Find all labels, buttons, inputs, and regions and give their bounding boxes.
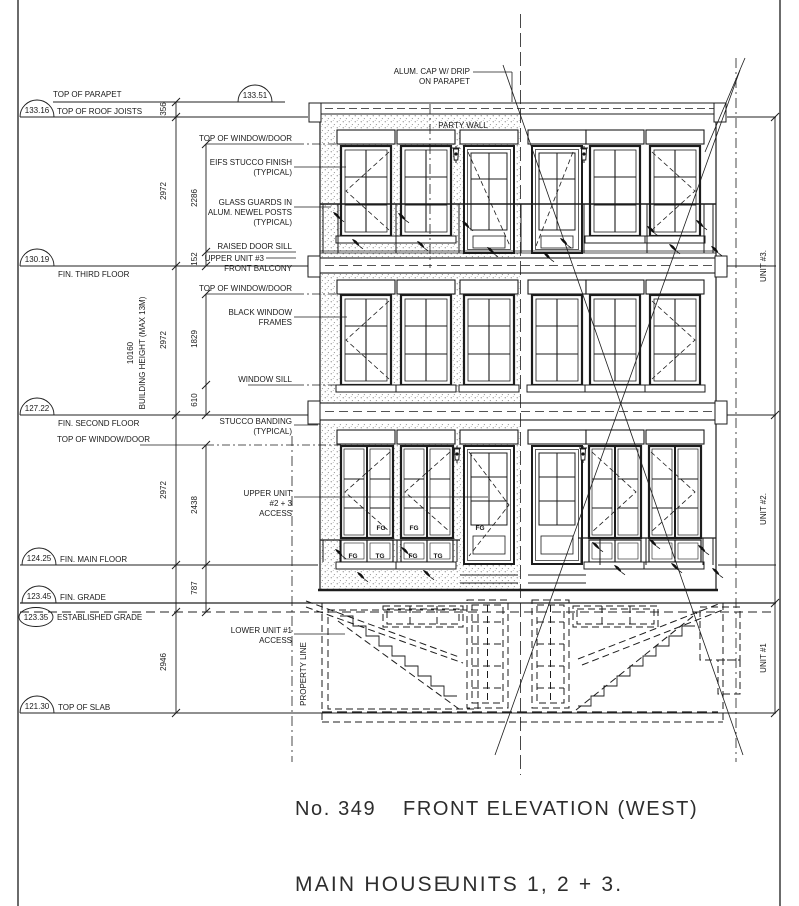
dimension-texts: 356 2972 2972 2972 2946 2286 152 1829 61… — [126, 102, 199, 671]
label-third: FIN. THIRD FLOOR — [58, 270, 130, 279]
label-roof: TOP OF ROOF JOISTS — [57, 107, 142, 116]
dim-grade: 787 — [190, 581, 199, 595]
window — [341, 146, 391, 236]
label-egrade: ESTABLISHED GRADE — [57, 613, 142, 622]
note-access23-2: #2 + 3 — [270, 499, 293, 508]
dim-win1: 2438 — [190, 496, 199, 514]
label-grade: FIN. GRADE — [60, 593, 106, 602]
building-height-note: BUILDING HEIGHT (MAX 13M) — [138, 296, 147, 409]
drawing-subtitle-1: MAIN HOUSE — [295, 873, 450, 896]
fg-tag: FG — [475, 525, 484, 532]
label-main: FIN. MAIN FLOOR — [60, 555, 127, 564]
fg-tag: FG — [409, 525, 418, 532]
note-access23-3: ACCESS — [259, 509, 292, 518]
window — [401, 295, 451, 385]
building-height-value: 10160 — [126, 341, 135, 364]
window — [650, 146, 700, 236]
label-second: FIN. SECOND FLOOR — [58, 419, 140, 428]
drawing-title: FRONT ELEVATION (WEST) — [403, 798, 698, 820]
dim-floor3: 2972 — [159, 182, 168, 200]
left-stair — [340, 616, 457, 696]
dimension-chain-outer — [172, 98, 180, 717]
basement-hidden-lines — [306, 600, 740, 722]
note-access1-1: LOWER UNIT #1 — [231, 626, 293, 635]
unit-labels: UNIT #3. UNIT #2. UNIT #1 — [759, 250, 768, 673]
elevation-drawing: FG FG FG FG TG FG TG — [0, 0, 799, 906]
note-access23-1: UPPER UNIT — [244, 489, 293, 498]
tg-tag: TG — [433, 553, 442, 560]
note-window-sill: WINDOW SILL — [238, 375, 292, 384]
elev-third: 130.19 — [25, 255, 50, 264]
entry-door — [532, 446, 582, 564]
unit-2-label: UNIT #2. — [759, 493, 768, 525]
dim-floor2: 2972 — [159, 331, 168, 349]
dim-win3: 2286 — [190, 189, 199, 207]
tg-tag: TG — [375, 553, 384, 560]
note-guards-1: GLASS GUARDS IN — [219, 198, 293, 207]
elev-main: 124.25 — [27, 554, 52, 563]
elev-egrade: 123.35 — [24, 613, 49, 622]
elev-roof: 133.16 — [25, 106, 50, 115]
fg-tag: FG — [376, 525, 385, 532]
label-parapet: TOP OF PARAPET — [53, 90, 122, 99]
window — [649, 446, 701, 538]
caption-block: No. 349 FRONT ELEVATION (WEST) MAIN HOUS… — [295, 798, 698, 896]
dim-parapet: 356 — [159, 102, 168, 116]
dim-sill3: 152 — [190, 252, 199, 266]
note-top-window-3: TOP OF WINDOW/DOOR — [199, 134, 292, 143]
unit-3-label: UNIT #3. — [759, 250, 768, 282]
elev-parapet: 133.51 — [243, 91, 268, 100]
label-slab: TOP OF SLAB — [58, 703, 110, 712]
note-guards-3: (TYPICAL) — [253, 218, 292, 227]
note-upper-unit-3: UPPER UNIT #3 — [205, 254, 265, 263]
drawing-number: No. 349 — [295, 798, 376, 820]
dim-win2: 1829 — [190, 330, 199, 348]
elev-grade: 123.45 — [27, 592, 52, 601]
dim-sill2: 610 — [190, 393, 199, 407]
note-black-2: FRAMES — [259, 318, 292, 327]
window — [464, 295, 514, 385]
unit-1-label: UNIT #1 — [759, 643, 768, 673]
note-party-wall: PARTY WALL — [438, 121, 488, 130]
fg-tag: FG — [408, 553, 417, 560]
dim-floor1: 2972 — [159, 481, 168, 499]
note-banding-1: STUCCO BANDING — [220, 417, 292, 426]
note-alum-cap-2: ON PARAPET — [419, 77, 470, 86]
window — [650, 295, 700, 385]
note-property-line: PROPERTY LINE — [299, 642, 308, 706]
note-black-1: BLACK WINDOW — [228, 308, 292, 317]
dim-basement: 2946 — [159, 653, 168, 671]
elev-slab: 121.30 — [25, 702, 50, 711]
note-top-window-1: TOP OF WINDOW/DOOR — [57, 435, 150, 444]
note-raised-sill: RAISED DOOR SILL — [217, 242, 292, 251]
note-alum-cap-1: ALUM. CAP W/ DRIP — [394, 67, 470, 76]
window — [341, 295, 391, 385]
note-banding-2: (TYPICAL) — [253, 427, 292, 436]
note-front-balcony: FRONT BALCONY — [224, 264, 293, 273]
drawing-sheet: FG FG FG FG TG FG TG — [0, 0, 799, 906]
fg-tag: FG — [348, 553, 357, 560]
note-eifs-2: (TYPICAL) — [253, 168, 292, 177]
note-top-window-2: TOP OF WINDOW/DOOR — [199, 284, 292, 293]
elev-second: 127.22 — [25, 404, 50, 413]
note-eifs-1: EIFS STUCCO FINISH — [210, 158, 292, 167]
entry-door-unit-2-3 — [464, 446, 514, 564]
drawing-subtitle-2: UNITS 1, 2 + 3. — [445, 873, 623, 896]
window — [590, 146, 640, 236]
note-guards-2: ALUM. NEWEL POSTS — [208, 208, 292, 217]
window — [532, 295, 582, 385]
note-access1-2: ACCESS — [259, 636, 292, 645]
window — [589, 446, 641, 538]
level-labels: TOP OF PARAPET TOP OF ROOF JOISTS FIN. T… — [53, 90, 142, 712]
